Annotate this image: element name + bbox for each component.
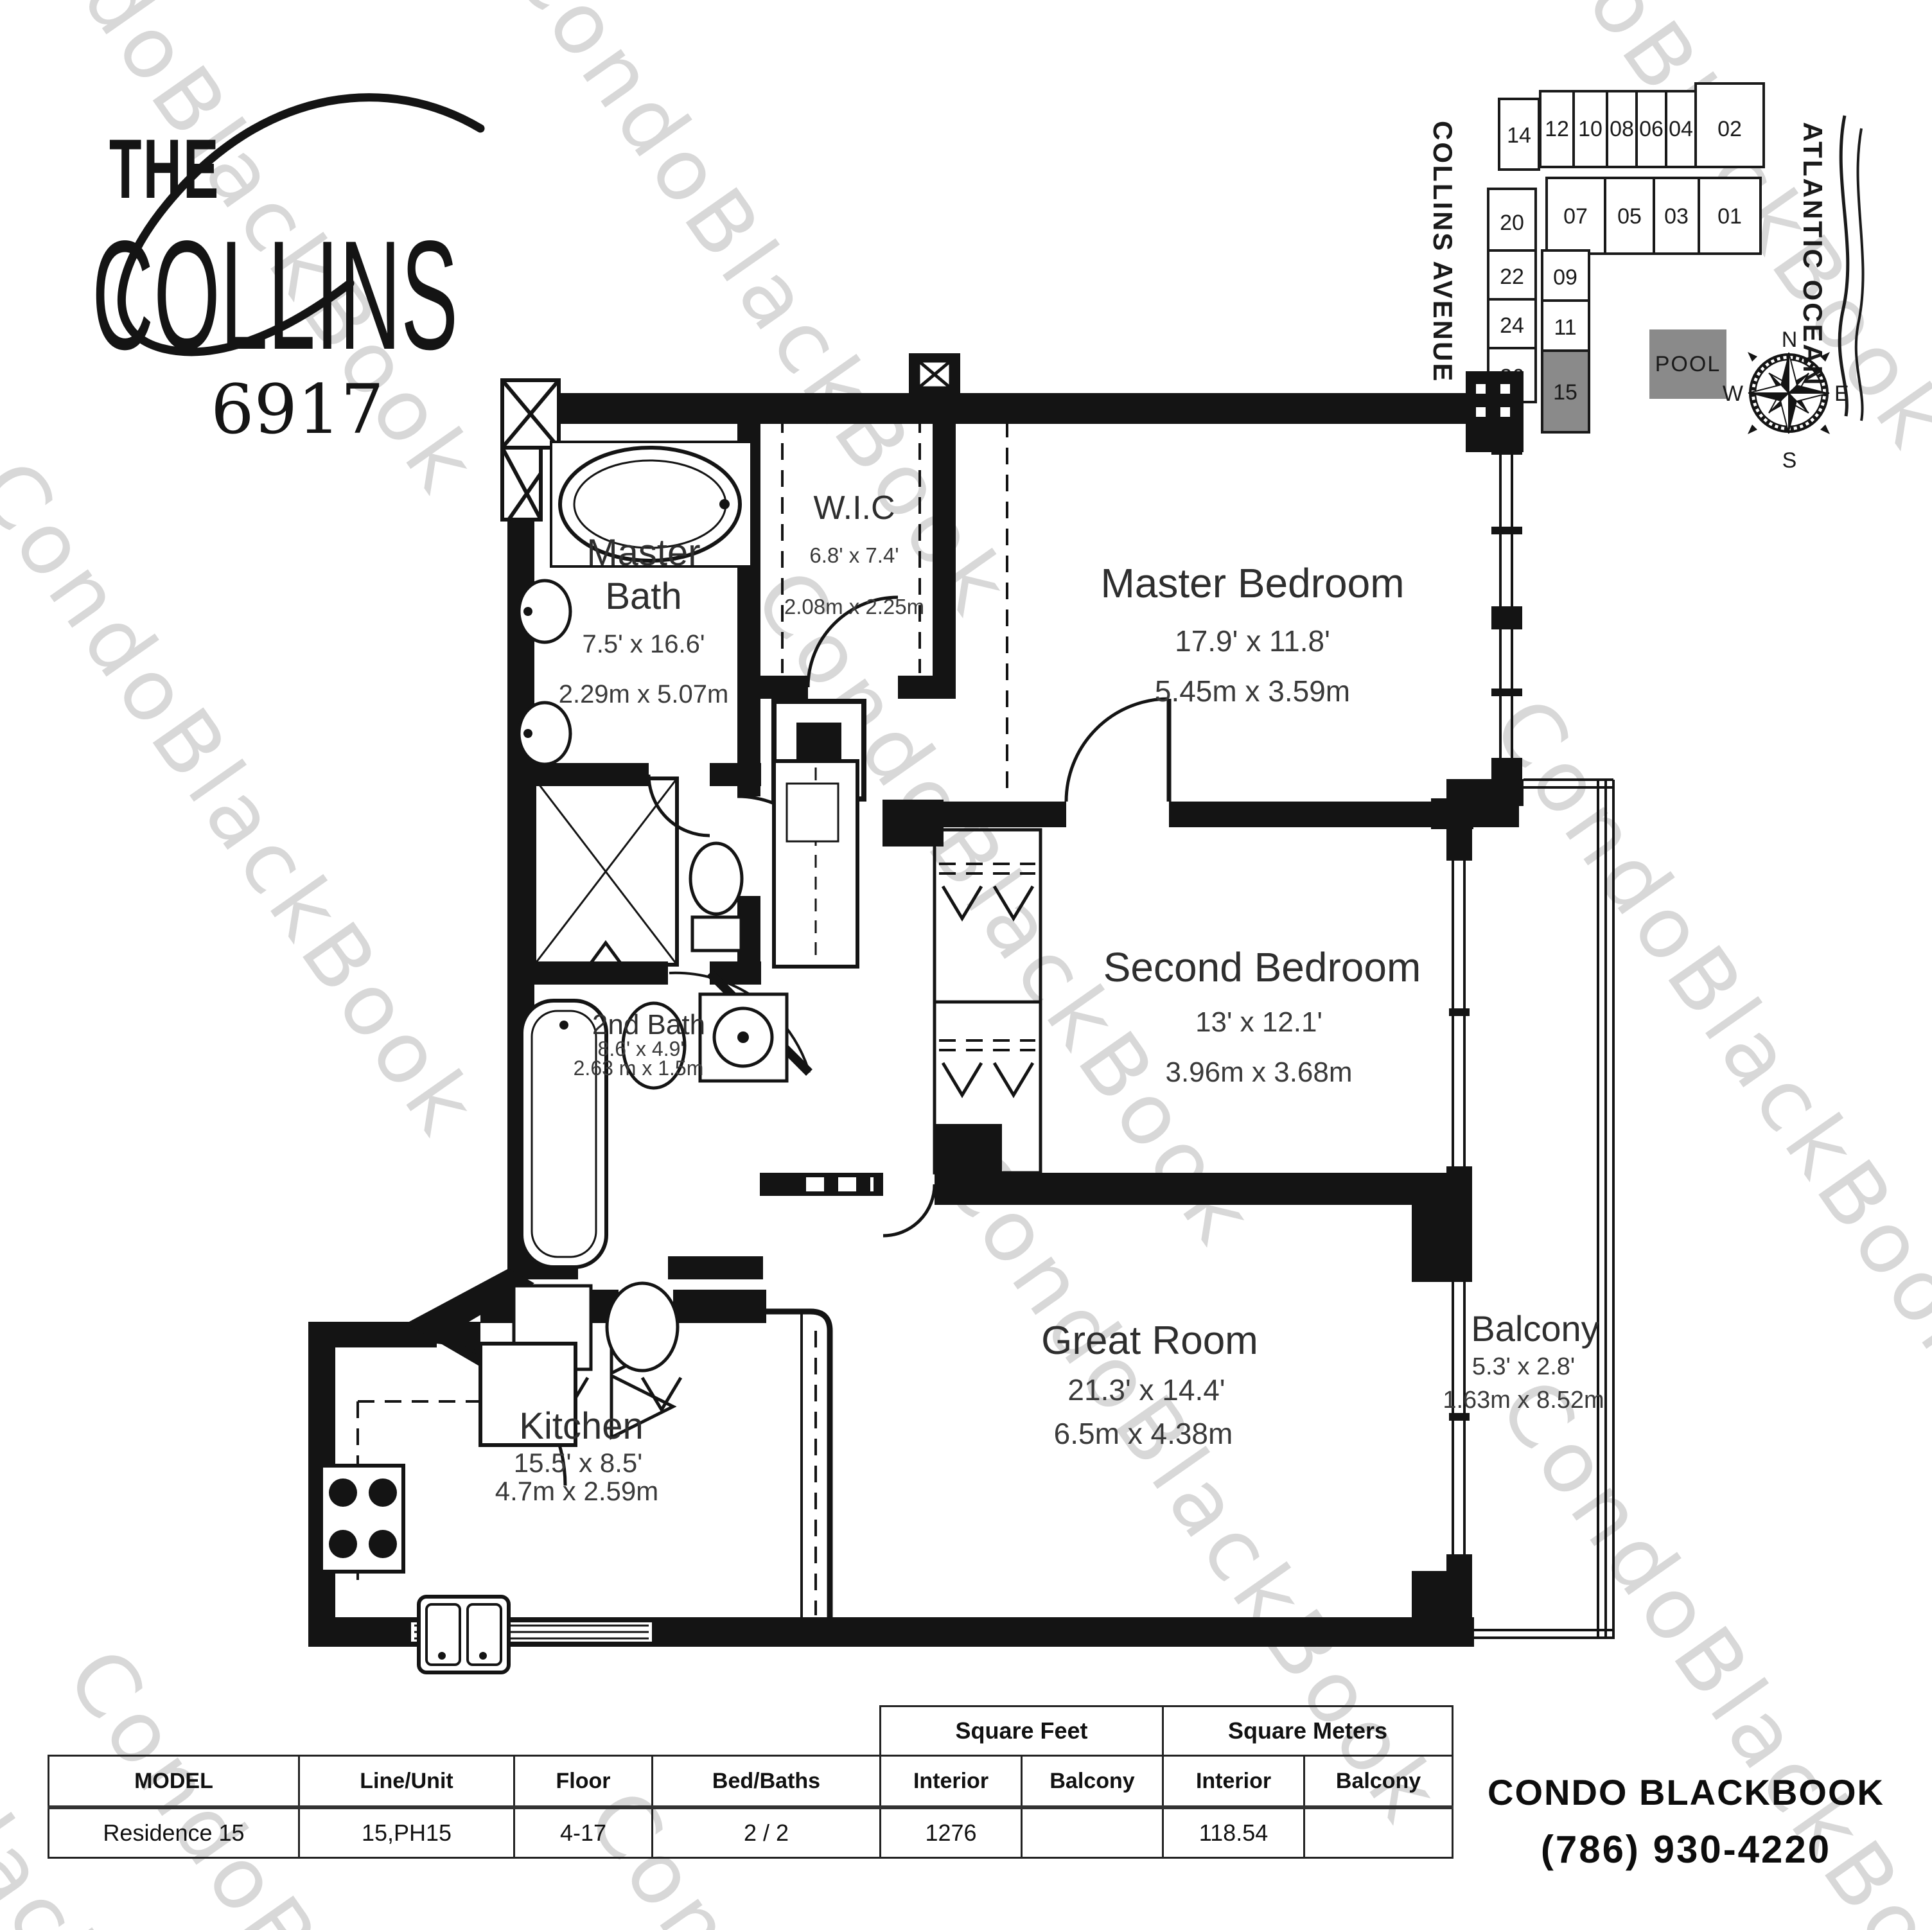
compass-w: W bbox=[1723, 382, 1743, 406]
room-label-balcony: Balcony bbox=[1471, 1308, 1599, 1349]
compass-icon: N E S W bbox=[1723, 328, 1849, 473]
room-dim-m-master-bedroom: 5.45m x 3.59m bbox=[1155, 674, 1350, 708]
room-dim-ft-master-bedroom: 17.9' x 11.8' bbox=[1175, 624, 1330, 658]
logo: THE COLLINS 6917 bbox=[92, 98, 480, 449]
table-header-row: MODEL Line/Unit Floor Bed/Baths Interior… bbox=[49, 1756, 1453, 1808]
compass-s: S bbox=[1782, 448, 1797, 473]
room-dim-ft-master-bath: 7.5' x 16.6' bbox=[583, 630, 705, 658]
table-spacer bbox=[49, 1706, 299, 1756]
unit-label-01: 01 bbox=[1717, 204, 1742, 229]
room-label-second-bedroom: Second Bedroom bbox=[1103, 944, 1421, 990]
room-dim-ft-balcony: 5.3' x 2.8' bbox=[1472, 1353, 1575, 1380]
unit-label-09: 09 bbox=[1553, 265, 1577, 290]
unit-label-04: 04 bbox=[1669, 117, 1693, 141]
unit-label-02: 02 bbox=[1717, 117, 1742, 141]
unit-label-10: 10 bbox=[1578, 117, 1603, 141]
room-dim-ft-great-room: 21.3' x 14.4' bbox=[1067, 1373, 1225, 1407]
unit-label-08: 08 bbox=[1610, 117, 1634, 141]
room-dim-ft-wic: 6.8' x 7.4' bbox=[809, 543, 899, 567]
col-header-sqm-balcony: Balcony bbox=[1304, 1756, 1453, 1808]
logo-number: 6917 bbox=[211, 370, 384, 449]
col-header-sqm-interior: Interior bbox=[1163, 1756, 1304, 1808]
unit-label-24: 24 bbox=[1500, 313, 1524, 338]
second-bath-toilet-icon bbox=[700, 994, 787, 1081]
logo-collins: COLLINS bbox=[92, 209, 458, 382]
col-header-model: MODEL bbox=[49, 1756, 299, 1808]
logo-the: THE bbox=[109, 123, 220, 216]
table-spacer bbox=[299, 1706, 514, 1756]
group-header-square-meters: Square Meters bbox=[1163, 1706, 1453, 1756]
room-dim-m-great-room: 6.5m x 4.38m bbox=[1054, 1417, 1233, 1450]
room-dim-ft-kitchen: 15.5' x 8.5' bbox=[514, 1448, 643, 1478]
unit-spec-table: Square Feet Square Meters MODEL Line/Uni… bbox=[48, 1705, 1453, 1859]
shower-icon bbox=[534, 778, 677, 965]
col-header-sqft-balcony: Balcony bbox=[1022, 1756, 1163, 1808]
second-bath-tub-icon bbox=[522, 1001, 606, 1267]
group-header-square-feet: Square Feet bbox=[881, 1706, 1163, 1756]
room-dim-m-balcony: 1.63m x 8.52m bbox=[1443, 1387, 1604, 1414]
room-label-kitchen: Kitchen bbox=[519, 1405, 643, 1447]
kitchen-sink-icon bbox=[419, 1597, 509, 1672]
room-label-master-bath: Master bbox=[586, 532, 700, 574]
room-label-second-bath: 2nd Bath bbox=[592, 1009, 705, 1040]
unit-label-15: 15 bbox=[1553, 380, 1577, 405]
cell-sqm-balcony bbox=[1304, 1807, 1453, 1858]
contact-phone: (786) 930-4220 bbox=[1464, 1827, 1908, 1872]
table-group-row: Square Feet Square Meters bbox=[49, 1706, 1453, 1756]
col-header-floor: Floor bbox=[514, 1756, 653, 1808]
cell-bed-baths: 2 / 2 bbox=[653, 1807, 881, 1858]
kitchen-counter bbox=[764, 1312, 830, 1617]
unit-label-22: 22 bbox=[1500, 265, 1524, 289]
room-dim-ft-second-bedroom: 13' x 12.1' bbox=[1195, 1006, 1322, 1038]
cell-sqm-interior: 118.54 bbox=[1163, 1807, 1304, 1858]
shoreline bbox=[1856, 128, 1863, 421]
cell-sqft-balcony bbox=[1022, 1807, 1163, 1858]
cell-floor: 4-17 bbox=[514, 1807, 653, 1858]
table-spacer bbox=[514, 1706, 653, 1756]
walls bbox=[308, 353, 1524, 1647]
contact-block: CONDO BLACKBOOK (786) 930-4220 bbox=[1464, 1771, 1908, 1872]
col-header-bed-baths: Bed/Baths bbox=[653, 1756, 881, 1808]
cell-sqft-interior: 1276 bbox=[881, 1807, 1022, 1858]
cell-line-unit: 15,PH15 bbox=[299, 1807, 514, 1858]
cell-model: Residence 15 bbox=[49, 1807, 299, 1858]
col-header-line-unit: Line/Unit bbox=[299, 1756, 514, 1808]
atlantic-ocean-label: ATLANTIC OCEAN bbox=[1798, 122, 1828, 387]
table-row: Residence 15 15,PH15 4-17 2 / 2 1276 118… bbox=[49, 1807, 1453, 1858]
table-spacer bbox=[653, 1706, 881, 1756]
unit-label-06: 06 bbox=[1639, 117, 1664, 141]
unit-label-20: 20 bbox=[1500, 211, 1524, 235]
column-x-icon bbox=[918, 361, 951, 388]
toilet-icon bbox=[690, 843, 742, 951]
unit-label-14: 14 bbox=[1507, 123, 1531, 148]
room-label-wic: W.I.C bbox=[813, 489, 895, 527]
compass-e: E bbox=[1834, 382, 1849, 406]
room-dim-m-second-bath: 2.63 m x 1.5m bbox=[574, 1057, 704, 1080]
col-header-sqft-interior: Interior bbox=[881, 1756, 1022, 1808]
unit-label-03: 03 bbox=[1664, 204, 1689, 229]
compass-n: N bbox=[1782, 328, 1798, 352]
room-dim-m-wic: 2.08m x 2.25m bbox=[784, 595, 924, 618]
unit-label-05: 05 bbox=[1617, 204, 1642, 229]
room-dim-m-second-bedroom: 3.96m x 3.68m bbox=[1165, 1057, 1352, 1088]
room-label-master-bath-2: Bath bbox=[605, 575, 681, 617]
shoreline bbox=[1840, 116, 1848, 416]
linen-cabinet-icon bbox=[774, 761, 857, 967]
collins-avenue-label: COLLINS AVENUE bbox=[1428, 121, 1458, 383]
pool-label: POOL bbox=[1655, 352, 1721, 376]
closet-strip bbox=[935, 830, 1041, 1173]
room-dim-m-kitchen: 4.7m x 2.59m bbox=[495, 1476, 658, 1506]
contact-name: CONDO BLACKBOOK bbox=[1464, 1771, 1908, 1813]
stove-icon bbox=[321, 1466, 403, 1572]
unit-label-07: 07 bbox=[1563, 204, 1588, 229]
unit-label-11: 11 bbox=[1554, 315, 1576, 340]
room-label-master-bedroom: Master Bedroom bbox=[1100, 560, 1404, 606]
balcony-rail bbox=[1474, 780, 1613, 1639]
floor-plan-svg: THE COLLINS 6917 bbox=[0, 0, 1932, 1930]
page: CondoBlackBook CondoBlackBook CondoBlack… bbox=[0, 0, 1932, 1930]
room-label-great-room: Great Room bbox=[1041, 1319, 1258, 1363]
room-dim-m-master-bath: 2.29m x 5.07m bbox=[559, 680, 729, 708]
unit-label-12: 12 bbox=[1545, 117, 1569, 141]
